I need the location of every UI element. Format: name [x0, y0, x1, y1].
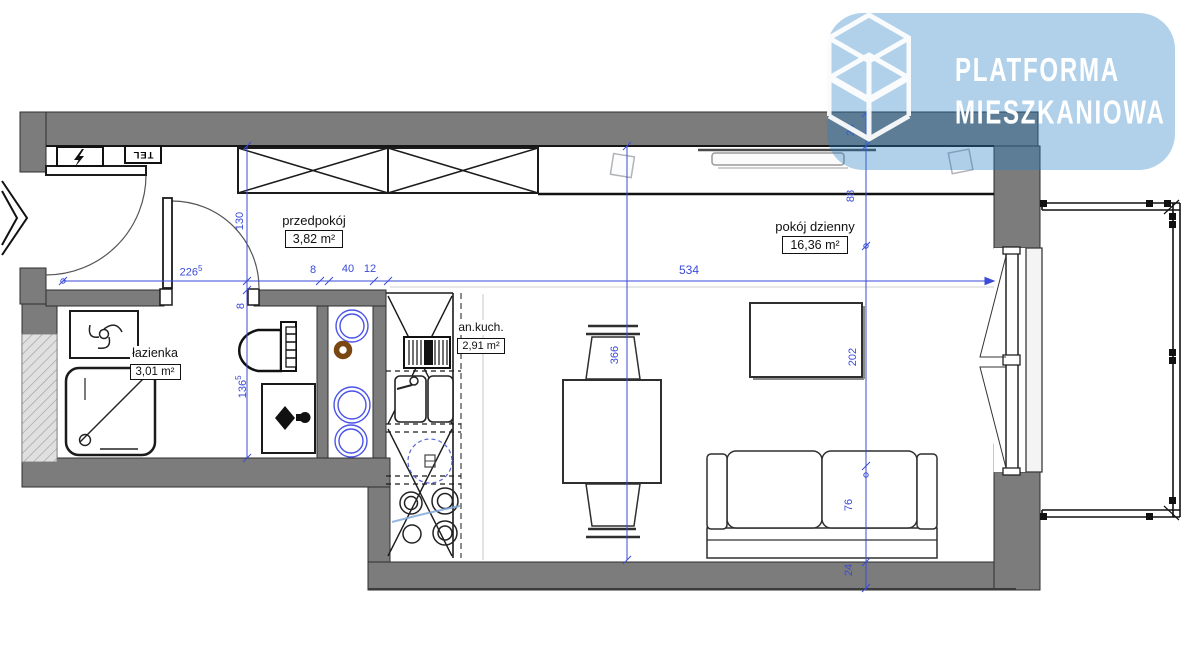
faucet-icon — [410, 377, 418, 385]
dim-offset88: 88 — [845, 166, 857, 226]
dim-seg8: 8 — [305, 264, 321, 276]
tel-box: TEL — [124, 145, 162, 164]
logo-line1: PLATFORMA — [955, 49, 1166, 91]
dining-table — [563, 380, 661, 483]
dim-wall8: 8 — [235, 276, 247, 336]
drain-icon — [300, 412, 311, 423]
room-area: 3,01 m² — [130, 364, 181, 380]
party-wall-hatch — [22, 334, 57, 462]
gas-pipe — [337, 344, 350, 357]
room-area: 16,36 m² — [782, 236, 847, 254]
chair — [586, 484, 640, 537]
balcony-railing — [1042, 200, 1180, 520]
dim-sofa76: 76 — [843, 475, 855, 535]
stove-burners — [400, 488, 458, 545]
room-label-hall: przedpokój 3,82 m² — [253, 212, 375, 248]
floor-plan: TEL przedpokój 3,82 m² pokój dzienny 16,… — [0, 0, 1200, 670]
plumbing-stack — [334, 310, 370, 457]
logo-cube-icon — [827, 13, 911, 143]
entrance-door — [46, 166, 146, 275]
dim-hall-height: 130 — [234, 191, 246, 251]
shower-tray — [66, 368, 155, 455]
room-name: łazienka — [130, 346, 180, 361]
wardrobe — [238, 148, 538, 193]
dim-bath-height: 1365 — [233, 357, 249, 417]
dim-hall-width: 2265 — [151, 263, 231, 279]
kitchen-sink — [395, 376, 453, 422]
microwave — [404, 337, 450, 368]
logo-badge: PLATFORMA MIESZKANIOWA — [827, 13, 1175, 170]
tel-label: TEL — [133, 149, 154, 160]
dim-living-height: 366 — [609, 325, 621, 385]
sink-cabinet — [262, 384, 315, 453]
logo-line2: MIESZKANIOWA — [955, 91, 1166, 133]
logo-text: PLATFORMA MIESZKANIOWA — [955, 49, 1166, 134]
room-label-kitchen: an.kuch. 2,91 m² — [450, 318, 512, 354]
room-area: 2,91 m² — [457, 338, 504, 354]
room-name: przedpokój — [280, 213, 348, 228]
dim-span202: 202 — [847, 327, 859, 387]
room-name: an.kuch. — [456, 320, 505, 335]
fridge — [408, 439, 452, 483]
entrance-arrow-icon — [2, 181, 27, 255]
dim-living-width: 534 — [659, 264, 719, 276]
room-area: 3,82 m² — [285, 230, 343, 248]
dim-seg40: 40 — [336, 263, 360, 275]
room-label-bath: łazienka 3,01 m² — [119, 344, 191, 380]
dim-seg12: 12 — [358, 263, 382, 275]
dim-wall-bottom: 24 — [843, 540, 855, 600]
railing-posts — [1040, 200, 1176, 520]
ceiling-lamp-icon — [610, 154, 634, 178]
electrical-panel — [57, 147, 103, 167]
sofa — [707, 451, 937, 558]
